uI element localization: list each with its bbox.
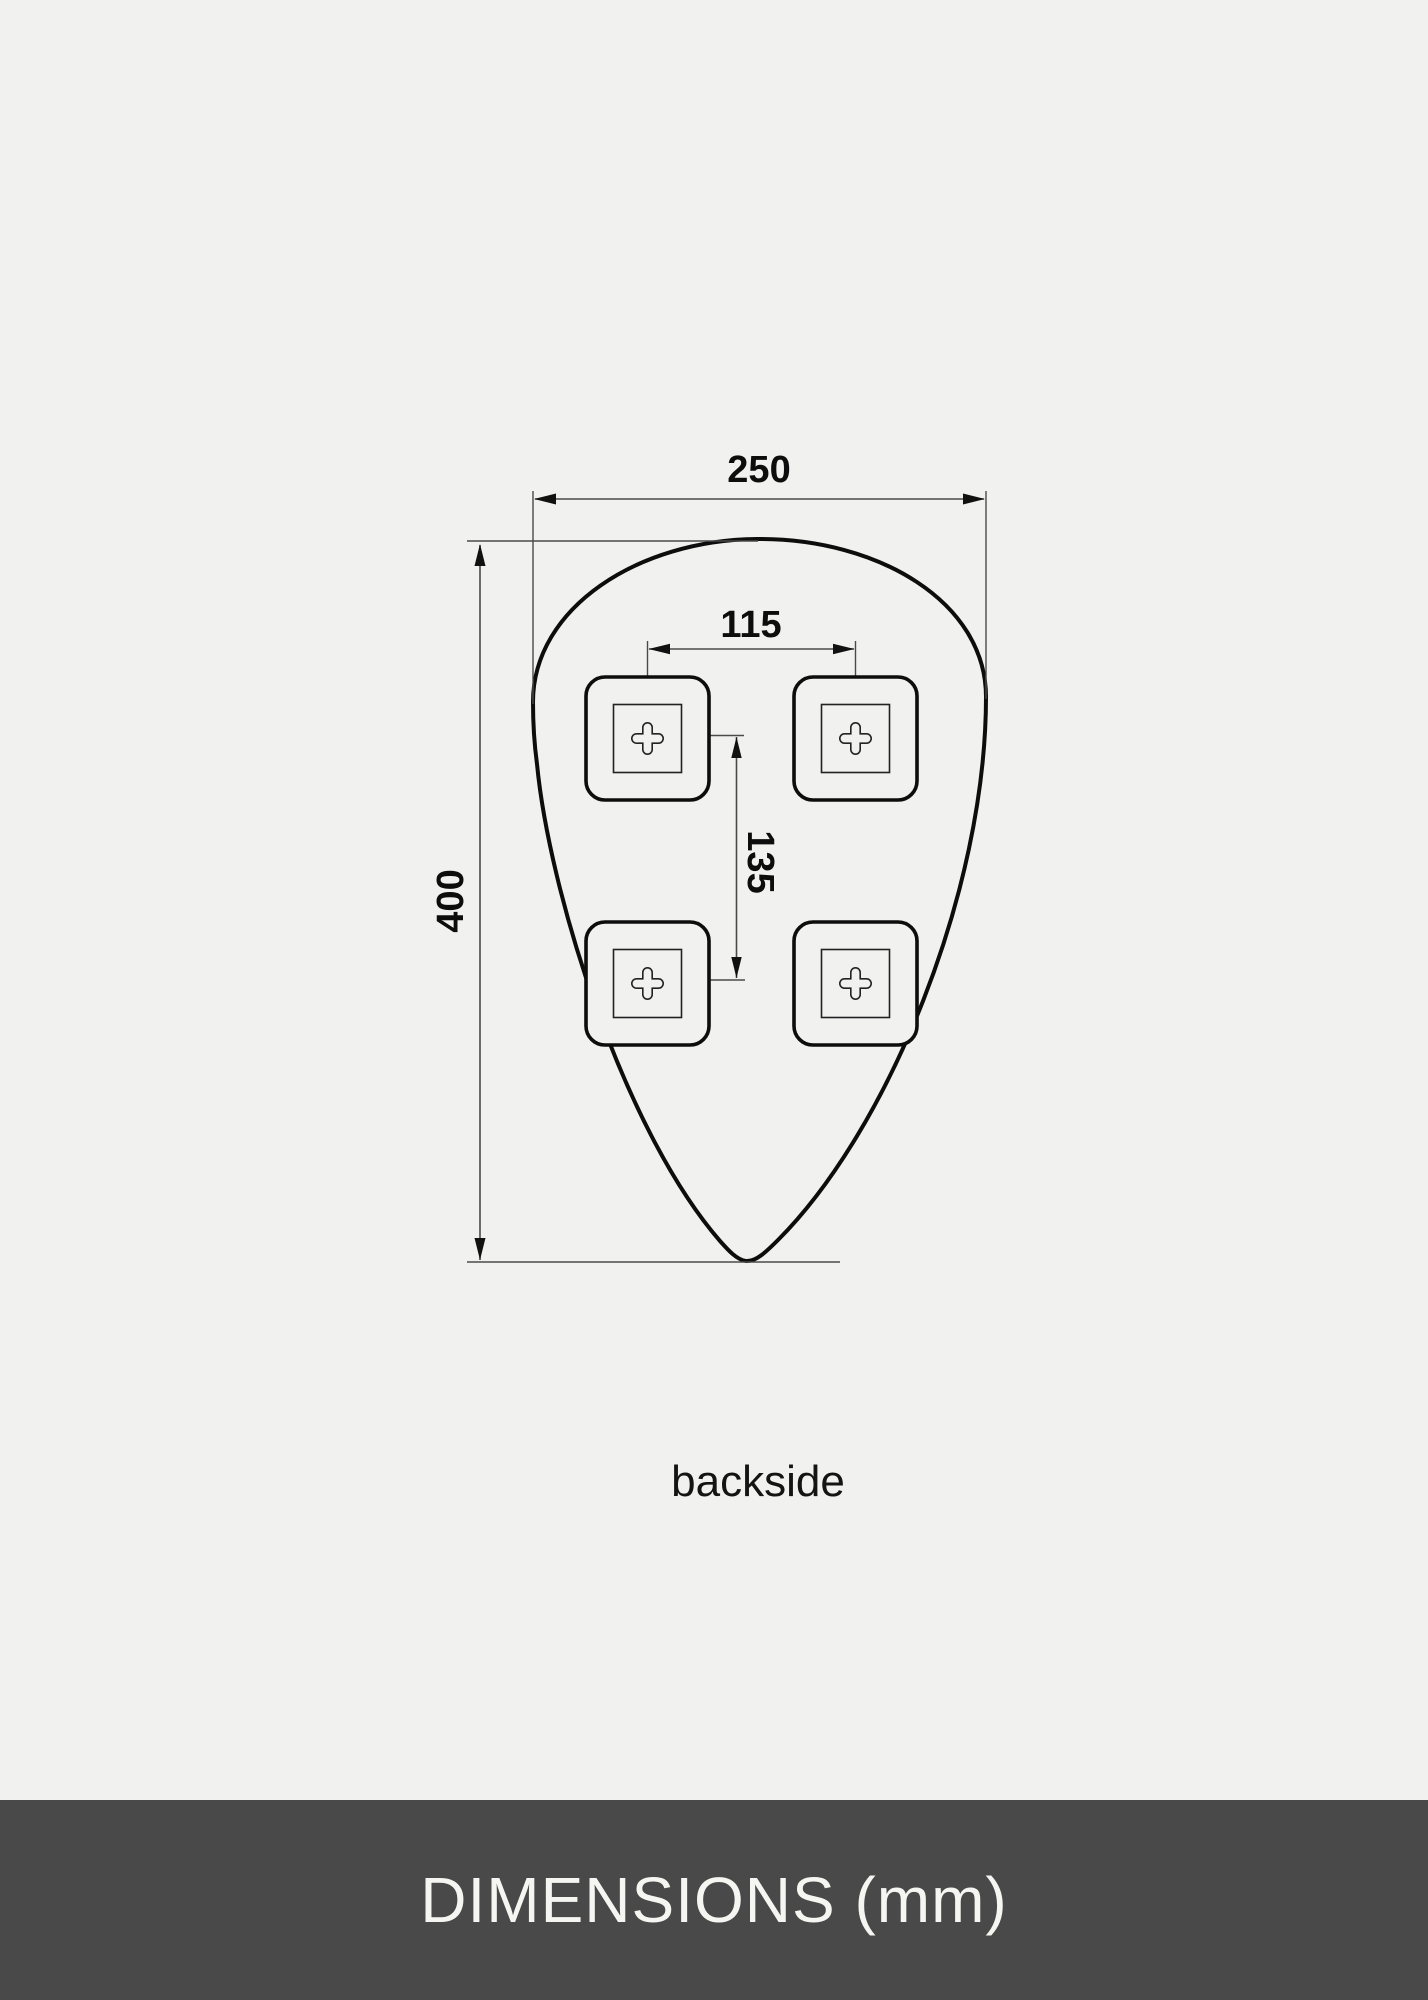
page: 250 400 115 135 <box>0 0 1428 2000</box>
arrowhead-left-icon <box>534 494 556 505</box>
mounting-bracket-bottom-left <box>586 922 709 1045</box>
arrowhead-up-icon <box>731 737 741 758</box>
mounting-bracket-top-left <box>586 677 709 800</box>
footer-bar: DIMENSIONS (mm) <box>0 1800 1428 2000</box>
footer-title: DIMENSIONS (mm) <box>420 1863 1007 1937</box>
dimension-bracket-spacing-horizontal: 115 <box>648 604 856 676</box>
arrowhead-right-icon <box>963 494 985 505</box>
mounting-bracket-top-right <box>794 677 917 800</box>
arrowhead-down-icon <box>731 957 741 978</box>
technical-drawing: 250 400 115 135 <box>0 0 1428 2000</box>
arrowhead-right-icon <box>833 644 855 654</box>
dimension-width-label: 250 <box>727 449 790 491</box>
arrowhead-up-icon <box>475 544 486 566</box>
drawing-caption: backside <box>671 1455 845 1509</box>
dimension-bracket-spacing-vertical: 135 <box>709 736 781 981</box>
dimension-spacing-vertical-label: 135 <box>739 830 781 893</box>
mounting-bracket-bottom-right <box>794 922 917 1045</box>
dimension-height-label: 400 <box>430 869 472 932</box>
dimension-spacing-horizontal-label: 115 <box>720 604 781 646</box>
mirror-outline <box>533 539 986 1261</box>
arrowhead-down-icon <box>475 1238 486 1260</box>
dimension-width: 250 <box>533 449 986 704</box>
arrowhead-left-icon <box>649 644 671 654</box>
